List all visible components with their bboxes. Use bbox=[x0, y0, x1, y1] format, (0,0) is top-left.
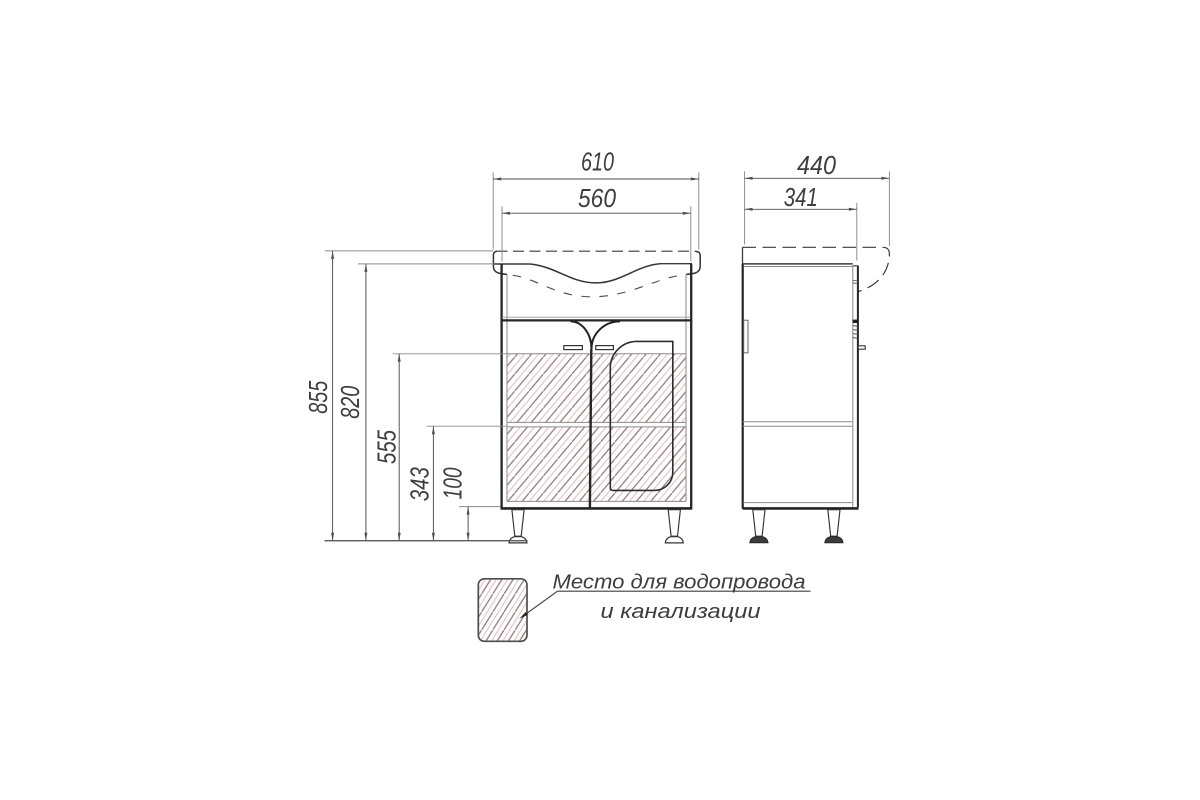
svg-text:341: 341 bbox=[784, 182, 818, 212]
svg-text:Место для водопровода: Место для водопровода bbox=[553, 572, 806, 594]
svg-text:820: 820 bbox=[335, 385, 365, 418]
svg-text:855: 855 bbox=[303, 380, 333, 413]
svg-text:100: 100 bbox=[438, 467, 468, 499]
svg-text:560: 560 bbox=[578, 183, 616, 213]
svg-text:555: 555 bbox=[372, 430, 402, 464]
svg-text:440: 440 bbox=[797, 150, 836, 180]
svg-text:610: 610 bbox=[581, 147, 614, 177]
svg-text:и канализации: и канализации bbox=[601, 601, 761, 623]
svg-text:343: 343 bbox=[404, 467, 434, 501]
